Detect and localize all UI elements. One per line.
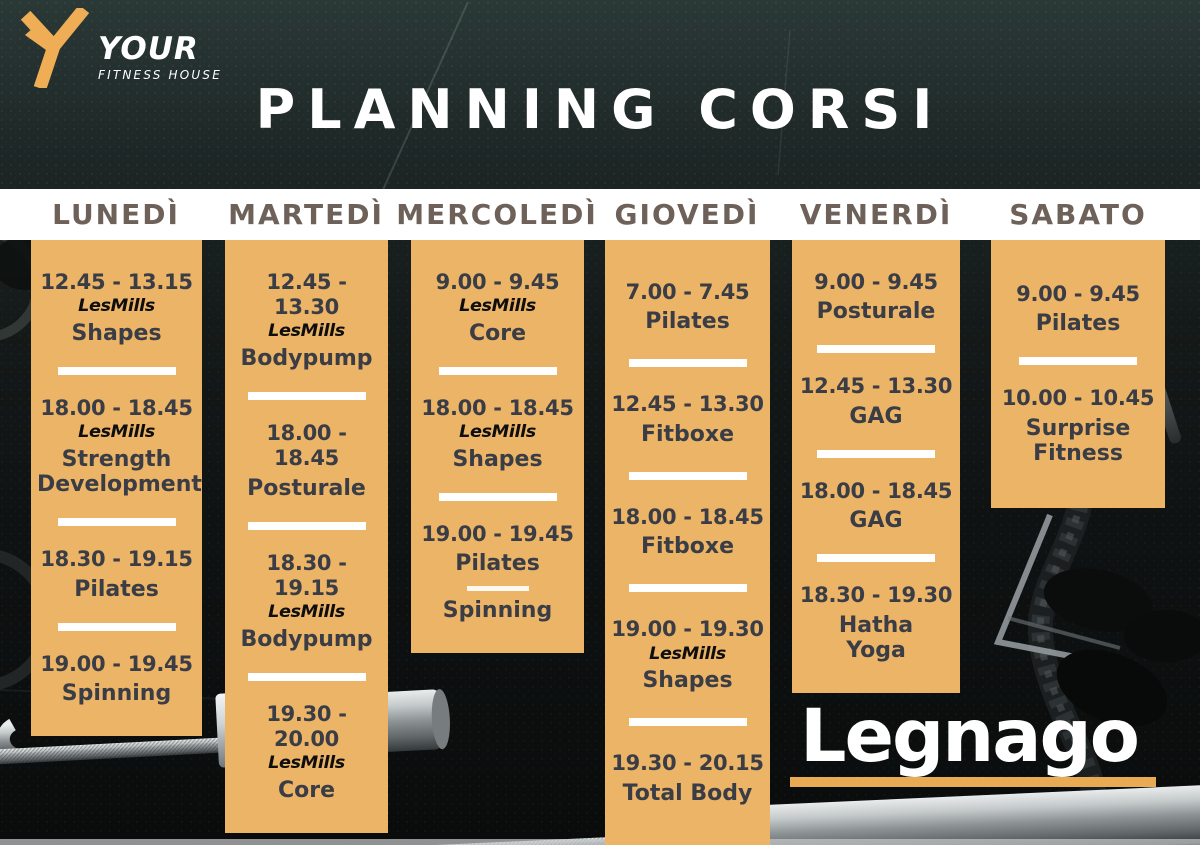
class-time: 12.45 - 13.30: [231, 270, 382, 320]
class-name: Spinning: [37, 681, 196, 706]
entry-divider: [58, 367, 176, 375]
class-name: Shapes: [417, 447, 578, 472]
page-title: PLANNING CORSI: [0, 78, 1200, 141]
class-time: 19.00 - 19.45: [37, 652, 196, 677]
class-name: Pilates: [417, 551, 578, 576]
class-name: Pilates: [611, 309, 764, 334]
entry-mini-divider: [467, 586, 529, 591]
bottom-bar-edge: [0, 839, 1200, 845]
class-time: 10.00 - 10.45: [997, 386, 1159, 411]
class-entry: 7.00 - 7.45 Pilates: [609, 280, 766, 334]
day-header-martedi: MARTEDÌ: [228, 189, 384, 240]
class-name: Hatha Yoga: [798, 613, 954, 664]
class-name: Spinning: [417, 598, 578, 623]
class-time: 12.45 - 13.15: [37, 270, 196, 295]
class-name: GAG: [798, 404, 954, 429]
entry-divider: [439, 367, 557, 375]
class-entry: 18.00 - 18.45 LesMills Shapes: [415, 396, 580, 472]
entry-divider: [817, 450, 935, 458]
class-name: Posturale: [231, 476, 382, 501]
lesmills-logo: LesMills: [34, 297, 199, 317]
entry-divider: [629, 718, 747, 726]
day-header-mercoledi: MERCOLEDÌ: [396, 189, 598, 240]
class-name: Core: [417, 321, 578, 346]
lesmills-logo: LesMills: [608, 645, 767, 665]
day-column-lunedi: 12.45 - 13.15 LesMills Shapes 18.00 - 18…: [31, 240, 202, 736]
day-column-mercoledi: 9.00 - 9.45 LesMills Core 18.00 - 18.45 …: [411, 240, 584, 653]
class-entry: 19.00 - 19.45 Spinning: [35, 652, 198, 706]
entry-divider: [629, 472, 747, 480]
class-entry: 18.00 - 18.45 Posturale: [229, 421, 384, 501]
class-name: Shapes: [611, 668, 764, 693]
class-name: Fitboxe: [611, 534, 764, 559]
class-entry: 19.30 - 20.15 Total Body: [609, 751, 766, 805]
logo-text: YOUR FITNESS HOUSE: [98, 34, 222, 82]
class-time: 12.45 - 13.30: [798, 374, 954, 399]
day-header-sabato: SABATO: [1009, 189, 1147, 240]
lesmills-logo: LesMills: [414, 297, 581, 317]
class-time: 19.30 - 20.15: [611, 751, 764, 776]
day-column-venerdi: 9.00 - 9.45 Posturale 12.45 - 13.30 GAG …: [792, 240, 960, 693]
class-entry: 12.45 - 13.30 GAG: [796, 374, 956, 428]
entry-divider: [248, 673, 366, 681]
class-time: 18.30 - 19.30: [798, 583, 954, 608]
class-entry: 18.00 - 18.45 GAG: [796, 479, 956, 533]
day-header-venerdi: VENERDÌ: [800, 189, 953, 240]
lesmills-logo: LesMills: [34, 423, 199, 443]
class-entry: 19.00 - 19.45 Pilates Spinning: [415, 522, 580, 623]
lesmills-logo: LesMills: [228, 322, 385, 342]
logo-y-icon: [20, 8, 90, 88]
logo-brand-name: YOUR: [98, 34, 222, 65]
class-time: 7.00 - 7.45: [611, 280, 764, 305]
class-entry: 12.45 - 13.30 LesMills Bodypump: [229, 270, 384, 371]
class-time: 9.00 - 9.45: [798, 270, 954, 295]
class-entry: 18.00 - 18.45 Fitboxe: [609, 505, 766, 559]
day-column-martedi: 12.45 - 13.30 LesMills Bodypump 18.00 - …: [225, 240, 388, 833]
entry-divider: [248, 522, 366, 530]
class-name: Shapes: [37, 321, 196, 346]
lesmills-logo: LesMills: [414, 423, 581, 443]
class-entry: 10.00 - 10.45 Surprise Fitness: [995, 386, 1161, 466]
planning-poster: YOUR FITNESS HOUSE PLANNING CORSI LUNEDÌ…: [0, 0, 1200, 845]
lesmills-logo: LesMills: [228, 603, 385, 623]
location-title: Legnago: [800, 700, 1160, 773]
entry-divider: [58, 518, 176, 526]
entry-divider: [817, 554, 935, 562]
class-entry: 18.00 - 18.45 LesMills Strength Developm…: [35, 396, 198, 497]
lesmills-logo: LesMills: [228, 754, 385, 774]
class-entry: 19.00 - 19.30 LesMills Shapes: [609, 617, 766, 693]
class-entry: 19.30 - 20.00 LesMills Core: [229, 702, 384, 803]
class-entry: 18.30 - 19.30 Hatha Yoga: [796, 583, 956, 663]
entry-divider: [629, 359, 747, 367]
entry-divider: [58, 623, 176, 631]
entry-divider: [439, 493, 557, 501]
class-time: 18.00 - 18.45: [417, 396, 578, 421]
class-entry: 12.45 - 13.30 Fitboxe: [609, 392, 766, 446]
class-time: 18.00 - 18.45: [231, 421, 382, 471]
entry-divider: [248, 392, 366, 400]
class-name: Fitboxe: [611, 422, 764, 447]
entry-divider: [817, 345, 935, 353]
class-time: 9.00 - 9.45: [997, 282, 1159, 307]
class-entry: 18.30 - 19.15 LesMills Bodypump: [229, 551, 384, 652]
day-column-giovedi: 7.00 - 7.45 Pilates 12.45 - 13.30 Fitbox…: [605, 240, 770, 845]
class-name: Bodypump: [231, 346, 382, 371]
class-entry: 18.30 - 19.15 Pilates: [35, 547, 198, 601]
class-time: 18.00 - 18.45: [37, 396, 196, 421]
day-header-lunedi: LUNEDÌ: [52, 189, 180, 240]
class-name: Strength Development: [37, 447, 196, 498]
class-name: Surprise Fitness: [997, 416, 1159, 467]
entry-divider: [1019, 357, 1137, 365]
class-time: 19.00 - 19.45: [417, 522, 578, 547]
class-entry: 9.00 - 9.45 LesMills Core: [415, 270, 580, 346]
class-name: Bodypump: [231, 627, 382, 652]
class-time: 18.00 - 18.45: [611, 505, 764, 530]
class-name: Total Body: [611, 781, 764, 806]
class-name: Core: [231, 778, 382, 803]
class-name: Posturale: [798, 299, 954, 324]
class-time: 12.45 - 13.30: [611, 392, 764, 417]
entry-divider: [629, 584, 747, 592]
day-header-giovedi: GIOVEDÌ: [615, 189, 760, 240]
class-time: 9.00 - 9.45: [417, 270, 578, 295]
brand-logo: YOUR FITNESS HOUSE: [20, 8, 222, 88]
class-entry: 12.45 - 13.15 LesMills Shapes: [35, 270, 198, 346]
class-time: 19.30 - 20.00: [231, 702, 382, 752]
day-column-sabato: 9.00 - 9.45 Pilates 10.00 - 10.45 Surpri…: [991, 240, 1165, 508]
class-name: GAG: [798, 508, 954, 533]
location-block: Legnago: [790, 700, 1160, 787]
class-time: 18.30 - 19.15: [37, 547, 196, 572]
class-name: Pilates: [37, 577, 196, 602]
class-time: 18.30 - 19.15: [231, 551, 382, 601]
class-name: Pilates: [997, 311, 1159, 336]
class-time: 19.00 - 19.30: [611, 617, 764, 642]
class-entry: 9.00 - 9.45 Pilates: [995, 282, 1161, 336]
class-time: 18.00 - 18.45: [798, 479, 954, 504]
class-entry: 9.00 - 9.45 Posturale: [796, 270, 956, 324]
